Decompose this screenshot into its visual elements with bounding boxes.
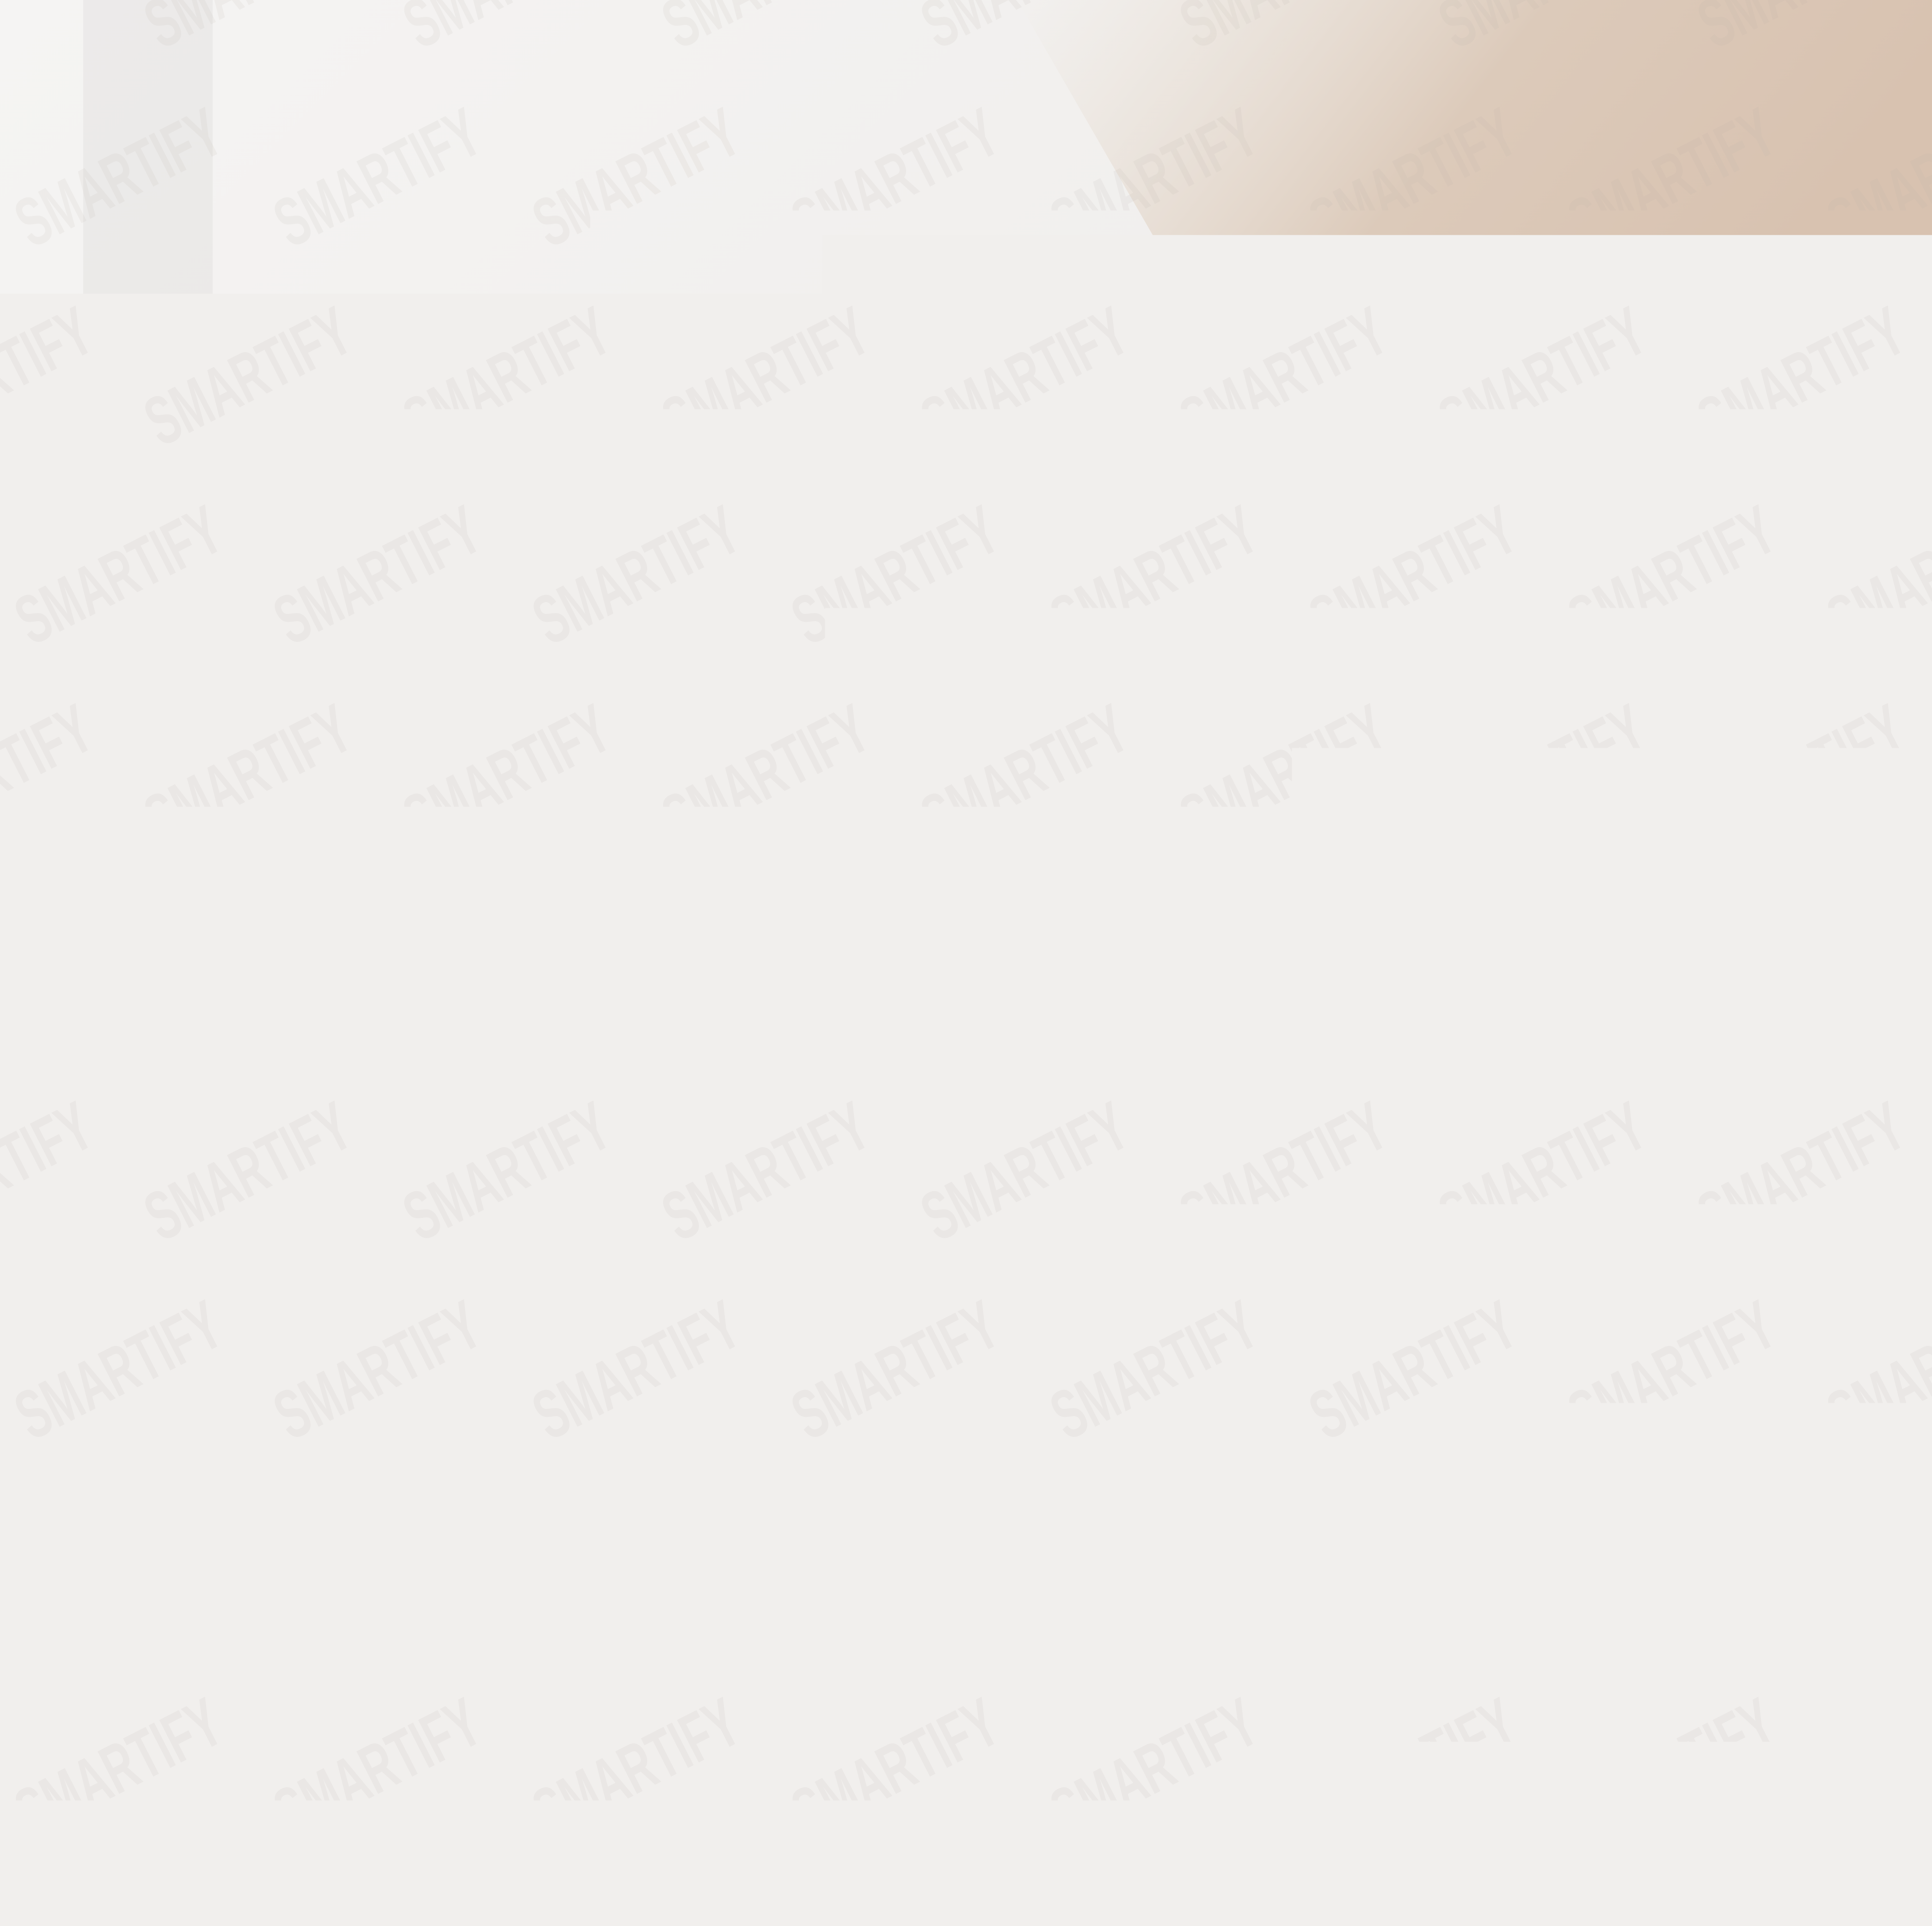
svg-text:SYPE103BR: SYPE103BR (924, 235, 1024, 263)
svg-text:MTUEWF: MTUEWF (353, 487, 427, 515)
svg-text:SYPMD2WF: SYPMD2WF (713, 1434, 809, 1462)
svg-text:SYPØM: SYPØM (315, 1717, 382, 1748)
svg-text:SYPMD2ZB: SYPMD2ZB (715, 1668, 807, 1696)
svg-text:COMPATIBILIDADE ENTRE ESPELHOS: COMPATIBILIDADE ENTRE ESPELHOS E MÓDULOS (342, 62, 1625, 163)
svg-text:SYPM01WF: SYPM01WF (503, 499, 596, 527)
svg-text:SYPMCTZB: SYPMCTZB (1140, 733, 1233, 761)
svg-text:MTTEWF: MTTEWF (354, 948, 426, 976)
svg-text:MTEZB: MTEZB (270, 647, 328, 675)
svg-text:SYPMESWF: SYPMESWF (1347, 499, 1444, 527)
svg-text:MTENO: MTENO (268, 796, 329, 824)
svg-text:SYPE100BR: SYPE100BR (296, 235, 395, 263)
svg-text:MTUEZB: MTUEZB (355, 647, 425, 675)
svg-text:SYPMD3WF: SYPMD3WF (926, 1434, 1021, 1462)
svg-text:MTTEZB: MTTEZB (356, 1106, 424, 1134)
svg-text:SYPE101BR: SYPE101BR (500, 235, 599, 263)
svg-text:MEIOS MÓDULOS: MEIOS MÓDULOS (287, 1264, 410, 1293)
svg-text:SYPE1ESBR: SYPE1ESBR (1348, 235, 1451, 263)
svg-text:MTTAZB: MTTAZB (264, 1106, 333, 1134)
svg-text:SYPE1D1BR: SYPE1D1BR (1560, 235, 1662, 263)
svg-text:SYPE102BR: SYPE102BR (711, 235, 811, 263)
svg-text:SYPMD1WF: SYPMD1WF (1562, 499, 1657, 527)
svg-text:MTUENO: MTUENO (353, 796, 426, 824)
svg-text:MTTAWF: MTTAWF (263, 948, 335, 976)
svg-text:MTEWF: MTEWF (268, 487, 330, 515)
svg-text:SYPE1CTBR: SYPE1CTBR (1135, 235, 1238, 263)
